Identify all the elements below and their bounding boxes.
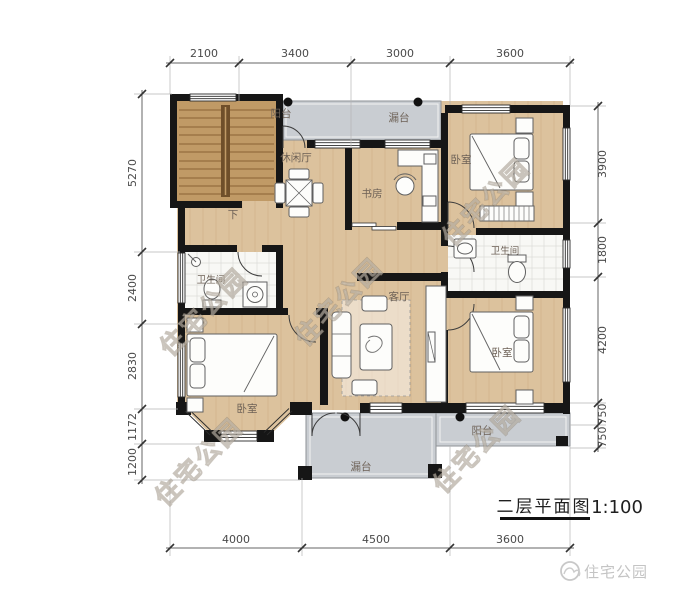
room-label-bedroom-bottomleft: 卧室: [237, 402, 258, 415]
dim-left-3: 2830: [126, 352, 139, 380]
nightstand-icon: [516, 118, 533, 133]
dim-right-2: 1800: [596, 236, 609, 264]
dim-left-1: 5270: [126, 159, 139, 187]
nightstand-icon: [187, 398, 203, 412]
chair-icon: [289, 207, 309, 217]
dim-right-5: 750: [596, 427, 609, 448]
watermark-text: 住宅公园: [149, 412, 249, 512]
room-label-bedroom-bottomright: 卧室: [492, 346, 513, 359]
room-label-living-room: 客厅: [389, 290, 410, 303]
dim-top-1: 2100: [190, 47, 218, 60]
room-label-leisure-hall: 休闲厅: [280, 151, 312, 164]
stairs: [177, 101, 276, 201]
chair-icon: [313, 183, 323, 203]
plan-scale: 1:100: [591, 497, 643, 518]
floor-plan-drawing: 阳台 漏台 休闲厅 书房 卧室 卫生间 卧室 卫生间 卧室 客厅 漏台 阳台 下: [0, 0, 700, 600]
dim-left-5: 1200: [126, 448, 139, 476]
floor-plan-page: 阳台 漏台 休闲厅 书房 卧室 卫生间 卧室 卫生间 卧室 客厅 漏台 阳台 下: [0, 0, 700, 600]
dim-right-1: 3900: [596, 150, 609, 178]
armchair-icon: [352, 380, 377, 395]
dim-top-4: 3600: [496, 47, 524, 60]
dim-right-3: 4200: [596, 326, 609, 354]
title-block: 二层平面图 1:100: [497, 497, 643, 520]
dim-right-4: 750: [596, 404, 609, 425]
room-label-study: 书房: [362, 187, 383, 200]
room-label-bedroom-topright: 卧室: [451, 153, 472, 166]
dim-bottom-3: 3600: [496, 533, 524, 546]
plan-title: 二层平面图: [497, 497, 592, 517]
title-underline: [500, 517, 590, 520]
chair-icon: [275, 183, 285, 203]
monitor-icon: [424, 154, 436, 164]
dim-left-2: 2400: [126, 274, 139, 302]
room-label-terrace-bottom: 漏台: [351, 460, 372, 473]
top-balcony-terrace: [283, 101, 441, 140]
armchair-icon: [362, 296, 387, 311]
stairs-down-label: 下: [228, 209, 239, 221]
room-label-terrace-top: 漏台: [389, 111, 410, 124]
dim-bottom-2: 4500: [362, 533, 390, 546]
brand-logo: 住宅公园: [561, 562, 648, 581]
nightstand-icon: [516, 390, 533, 404]
chair-icon: [289, 169, 309, 179]
printer-icon: [423, 196, 436, 206]
coffee-table-icon: [360, 324, 392, 370]
room-label-balcony-top: 阳台: [271, 107, 292, 120]
nightstand-icon: [516, 296, 533, 310]
dim-bottom-1: 4000: [222, 533, 250, 546]
logo-text: 住宅公园: [584, 563, 648, 581]
nightstand-icon: [516, 192, 533, 207]
room-label-bathroom-right: 卫生间: [491, 245, 520, 257]
dim-top-2: 3400: [281, 47, 309, 60]
dim-left-4: 1172: [126, 413, 139, 441]
dim-top-3: 3000: [386, 47, 414, 60]
chair-icon: [396, 177, 414, 195]
